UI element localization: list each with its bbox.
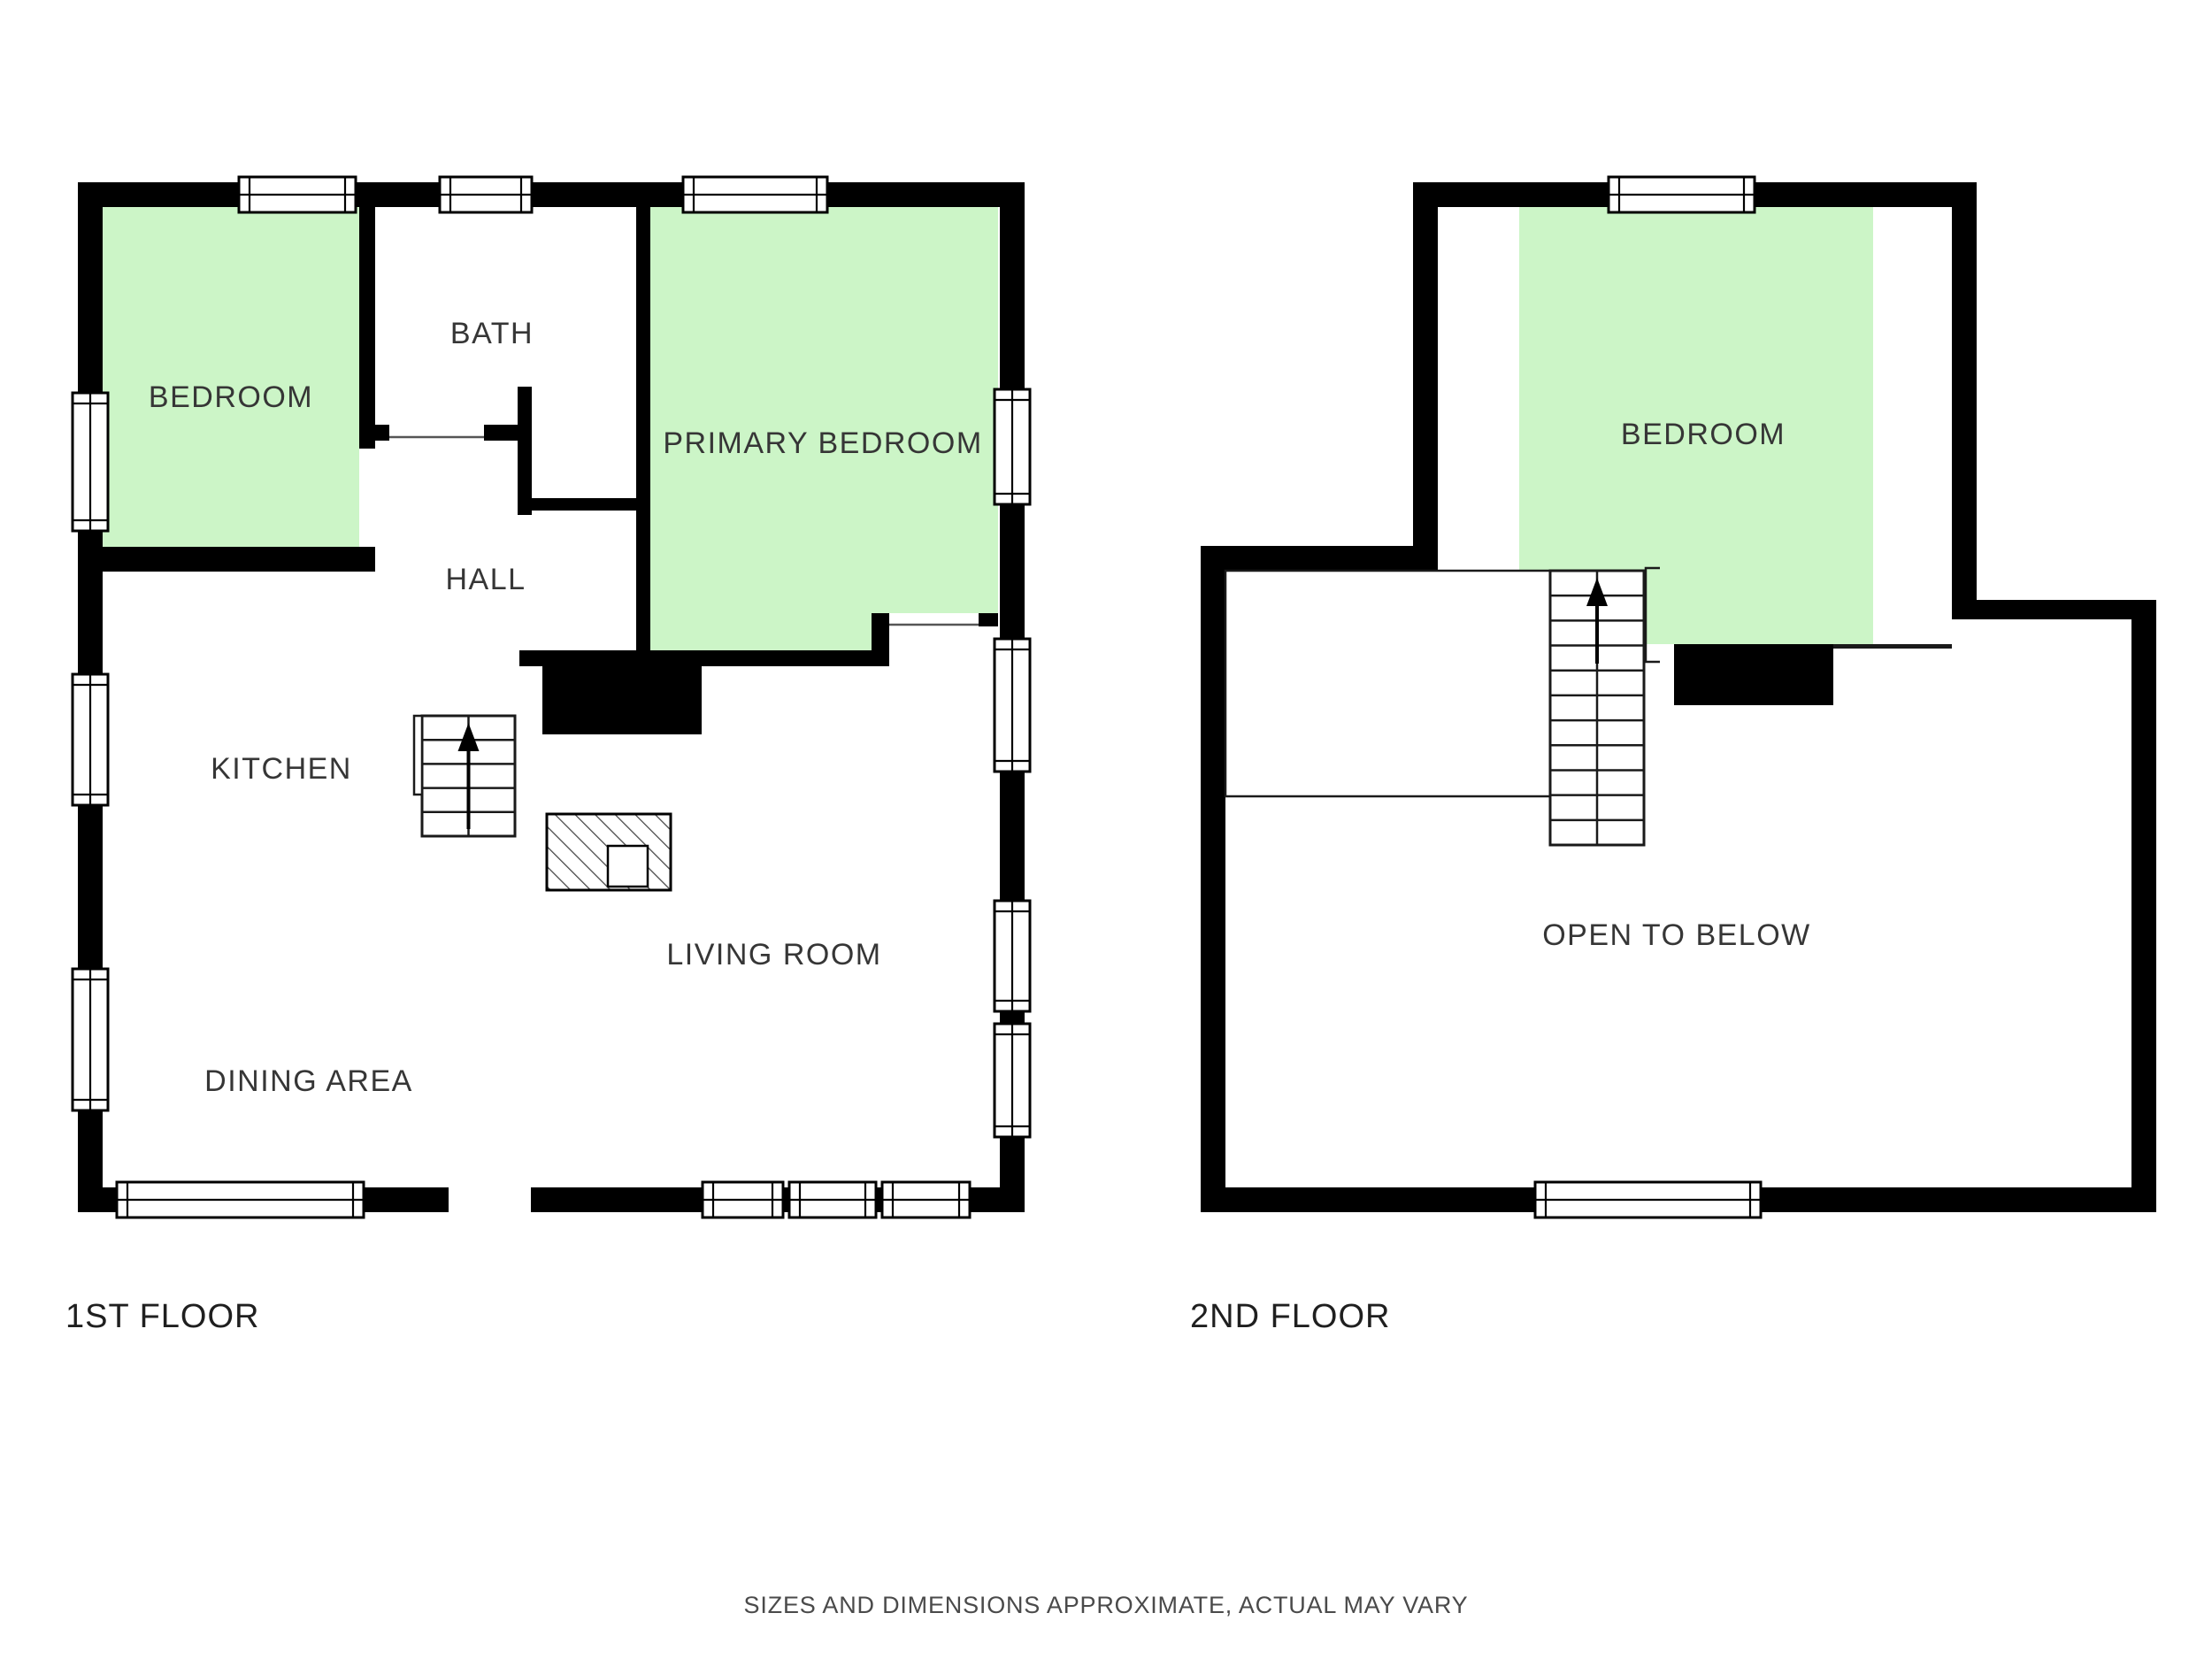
window-symbol [1609, 177, 1755, 212]
window-symbol [117, 1182, 364, 1217]
fireplace-icon [547, 814, 671, 890]
window-symbol [995, 901, 1030, 1011]
window-symbol [683, 177, 827, 212]
floor-plan-canvas: BEDROOM BATH PRIMARY BEDROOM HALL KITCHE… [0, 0, 2212, 1659]
second-floor-title: 2ND FLOOR [1190, 1298, 1390, 1335]
room-label-open-to-below: OPEN TO BELOW [1542, 918, 1811, 952]
window-symbol [703, 1182, 783, 1217]
room-label-dining-area: DINING AREA [204, 1064, 413, 1098]
room-label-primary-bedroom: PRIMARY BEDROOM [663, 426, 982, 460]
room-label-bedroom: BEDROOM [149, 380, 313, 414]
window-symbol [1535, 1182, 1761, 1217]
window-symbol [73, 674, 108, 805]
window-symbol [995, 389, 1030, 504]
room-label-bedroom: BEDROOM [1621, 418, 1786, 451]
room-label-hall: HALL [445, 563, 526, 596]
window-symbol [995, 1024, 1030, 1137]
window-symbol [789, 1182, 876, 1217]
bedroom-floor-edge [1833, 644, 1952, 649]
room-label-bath: BATH [450, 317, 534, 350]
bedroom-room-fill [103, 207, 359, 547]
stairs-up-icon [1550, 571, 1644, 845]
second-floor-plan: BEDROOM OPEN TO BELOW 2ND FLOOR [1190, 177, 2156, 1335]
window-symbol [882, 1182, 970, 1217]
chimney-mass [542, 666, 702, 734]
first-floor-plan: BEDROOM BATH PRIMARY BEDROOM HALL KITCHE… [65, 177, 1030, 1335]
window-symbol [995, 639, 1030, 772]
first-floor-title: 1ST FLOOR [65, 1298, 259, 1335]
room-label-kitchen: KITCHEN [211, 752, 352, 786]
window-symbol [440, 177, 532, 212]
chimney-mass [1674, 644, 1833, 705]
room-label-living-room: LIVING ROOM [666, 938, 881, 972]
stairwell-void [1225, 571, 1550, 796]
window-symbol [239, 177, 356, 212]
window-symbol [73, 969, 108, 1110]
floor-plan-page: BEDROOM BATH PRIMARY BEDROOM HALL KITCHE… [0, 0, 2212, 1659]
stairs-side-rail [414, 716, 422, 795]
window-symbol [73, 393, 108, 531]
disclaimer-text: SIZES AND DIMENSIONS APPROXIMATE, ACTUAL… [744, 1592, 1469, 1618]
door-opening [449, 1184, 531, 1216]
stairs-up-icon [422, 716, 515, 836]
